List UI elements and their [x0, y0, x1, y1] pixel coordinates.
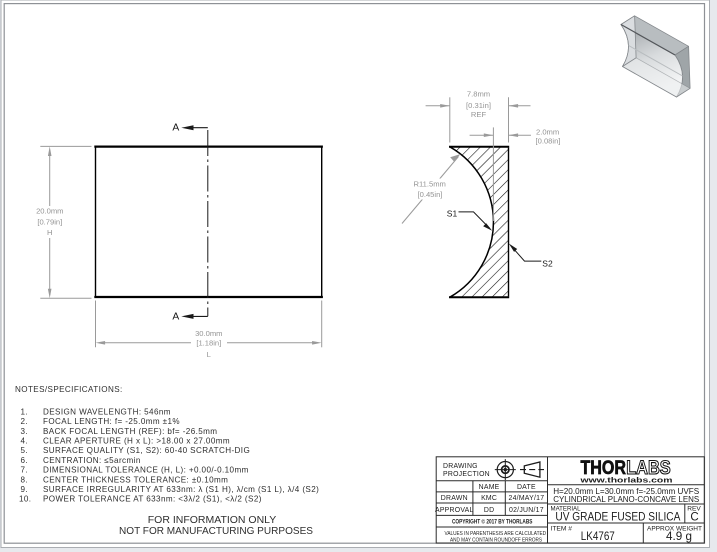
svg-text:DIMENSIONAL TOLERANCE (H, L):: DIMENSIONAL TOLERANCE (H, L): +0.00/-0.1… [43, 466, 249, 475]
svg-text:DD: DD [484, 507, 494, 514]
svg-text:BACK FOCAL LENGTH (REF): bf= -: BACK FOCAL LENGTH (REF): bf= -26.5mm [43, 427, 217, 436]
svg-text:10.: 10. [19, 495, 31, 504]
svg-text:6.: 6. [21, 456, 29, 465]
svg-text:5.: 5. [21, 446, 29, 455]
svg-text:DRAWN: DRAWN [441, 495, 468, 502]
svg-text:H: H [47, 228, 52, 237]
svg-text:VALUES IN PARENTHESIS ARE CALC: VALUES IN PARENTHESIS ARE CALCULATED [445, 531, 547, 537]
svg-text:[0.45in]: [0.45in] [418, 190, 443, 199]
svg-text:NOTES/SPECIFICATIONS:: NOTES/SPECIFICATIONS: [15, 385, 123, 394]
svg-text:[0.08in]: [0.08in] [536, 137, 561, 146]
svg-text:24/MAY/17: 24/MAY/17 [508, 495, 544, 502]
svg-text:DESIGN WAVELENGTH: 546nm: DESIGN WAVELENGTH: 546nm [43, 407, 171, 416]
svg-text:APPROVAL: APPROVAL [435, 507, 474, 514]
svg-text:20.0mm: 20.0mm [36, 207, 63, 216]
svg-text:9.: 9. [21, 485, 29, 494]
svg-text:4.9 g: 4.9 g [666, 531, 692, 543]
svg-text:30.0mm: 30.0mm [195, 329, 222, 338]
svg-text:02/JUN/17: 02/JUN/17 [509, 507, 544, 514]
svg-text:NAME: NAME [479, 484, 500, 491]
svg-text:UV GRADE FUSED SILICA: UV GRADE FUSED SILICA [555, 512, 680, 524]
svg-text:7.8mm: 7.8mm [467, 90, 490, 99]
svg-text:CLEAR APERTURE (H x L): >18.00: CLEAR APERTURE (H x L): >18.00 x 27.00mm [43, 437, 230, 446]
svg-text:7.: 7. [21, 466, 29, 475]
svg-text:FOCAL LENGTH: f= -25.0mm ±1%: FOCAL LENGTH: f= -25.0mm ±1% [43, 417, 180, 426]
svg-text:L: L [207, 350, 211, 359]
svg-text:REF: REF [471, 110, 487, 119]
svg-text:2.: 2. [21, 417, 29, 426]
svg-text:THOR: THOR [581, 458, 627, 479]
svg-text:2.0mm: 2.0mm [536, 128, 559, 137]
svg-text:[0.79in]: [0.79in] [37, 217, 62, 226]
svg-text:[1.18in]: [1.18in] [196, 339, 221, 348]
svg-text:8.: 8. [21, 475, 29, 484]
svg-text:[0.31in]: [0.31in] [466, 101, 491, 110]
svg-text:AND MAY CONTAIN ROUNDOFF ERROR: AND MAY CONTAIN ROUNDOFF ERRORS [450, 537, 542, 543]
svg-text:S2: S2 [542, 258, 553, 268]
svg-text:C: C [690, 512, 698, 524]
svg-text:SURFACE IRREGULARITY AT 633nm:: SURFACE IRREGULARITY AT 633nm: λ (S1 H),… [43, 485, 319, 494]
svg-text:1.: 1. [21, 407, 29, 416]
svg-text:LK4767: LK4767 [581, 531, 615, 543]
svg-text:FOR INFORMATION ONLY: FOR INFORMATION ONLY [148, 515, 277, 526]
svg-text:PROJECTION: PROJECTION [443, 471, 490, 478]
svg-text:NOT FOR MANUFACTURING PURPOSES: NOT FOR MANUFACTURING PURPOSES [119, 526, 313, 537]
svg-text:SURFACE QUALITY (S1, S2): 60-4: SURFACE QUALITY (S1, S2): 60-40 SCRATCH-… [43, 446, 250, 455]
svg-text:KMC: KMC [481, 495, 497, 502]
svg-text:S1: S1 [447, 208, 458, 218]
svg-text:A: A [172, 311, 179, 322]
svg-text:DRAWING: DRAWING [443, 463, 478, 470]
svg-text:CENTRATION: ≤5arcmin: CENTRATION: ≤5arcmin [43, 456, 141, 465]
svg-text:DATE: DATE [517, 484, 536, 491]
svg-text:CYLINDRICAL PLANO-CONCAVE LENS: CYLINDRICAL PLANO-CONCAVE LENS [553, 494, 699, 504]
svg-text:POWER TOLERANCE AT 633nm: <3λ/: POWER TOLERANCE AT 633nm: <3λ/2 (S1), <λ… [43, 495, 262, 504]
svg-text:3.: 3. [21, 427, 29, 436]
svg-text:COPYRIGHT © 2017 BY THORLABS: COPYRIGHT © 2017 BY THORLABS [452, 519, 533, 526]
svg-text:4.: 4. [21, 437, 29, 446]
svg-text:www.thorlabs.com: www.thorlabs.com [579, 477, 672, 484]
svg-text:LABS: LABS [626, 458, 671, 479]
svg-text:A: A [172, 122, 179, 133]
svg-text:R11.5mm: R11.5mm [414, 180, 446, 189]
svg-text:CENTER THICKNESS TOLERANCE: ±0: CENTER THICKNESS TOLERANCE: ±0.10mm [43, 475, 228, 484]
svg-text:ITEM #: ITEM # [551, 526, 573, 533]
